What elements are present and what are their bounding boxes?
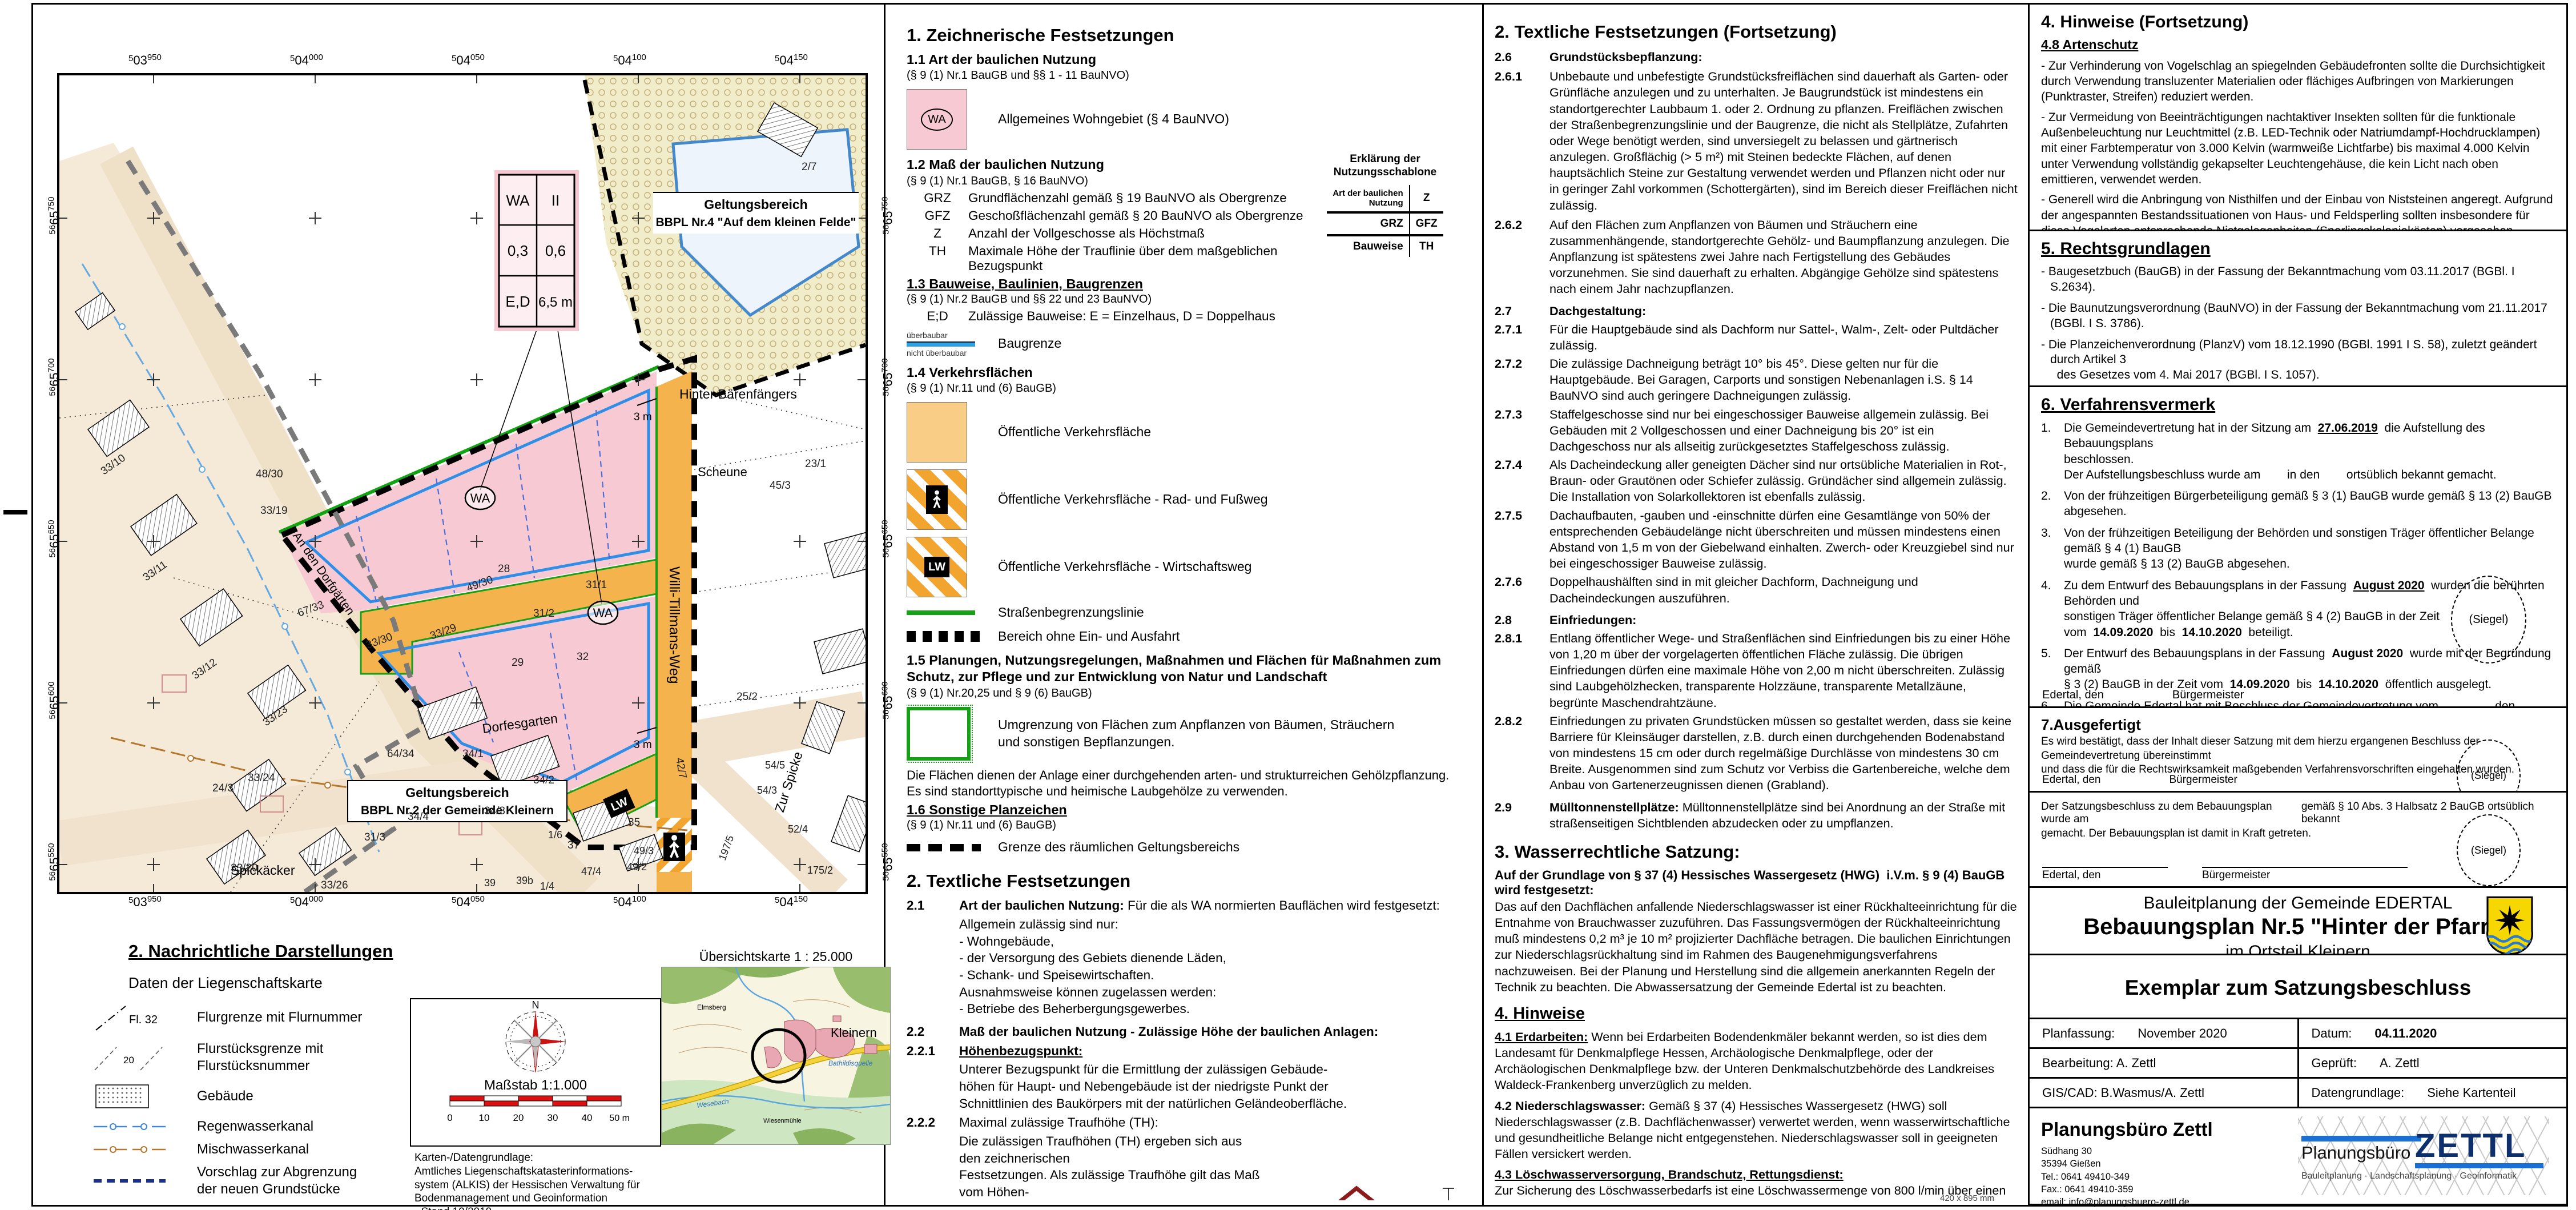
item-number: 2.7.5 [1495, 508, 1549, 572]
svg-text:Geltungsbereich: Geltungsbereich [704, 197, 807, 212]
signature-place: Edertal, den [2042, 689, 2104, 702]
parcel-label: 39b [516, 875, 533, 886]
definition-row: ZAnzahl der Vollgeschosse als Höchstmaß [907, 226, 1462, 241]
svg-text:3 m: 3 m [634, 411, 652, 423]
datasource-line: Karten-/Datengrundlage: [414, 1151, 640, 1165]
label: GIS/CAD: B.Wasmus/A. Zettl [2042, 1086, 2204, 1100]
svg-text:20: 20 [513, 1112, 524, 1123]
geltungsbereich-swatch [907, 844, 981, 851]
svg-text:20: 20 [123, 1055, 134, 1066]
item-text: Als Dacheindeckung aller geneigten Däche… [1549, 457, 2018, 505]
parcel-label: 197/5 [717, 834, 736, 862]
box-verfahrensvermerk: 6. Verfahrensvermerk 1.Die Gemeindevertr… [2028, 387, 2568, 708]
parcel-label: 49/2 [627, 861, 647, 873]
map-coordinate: 504000 [290, 53, 323, 68]
legend-label: Flurgrenze mit Flurnummer [197, 1009, 362, 1026]
legend-label: Umgrenzung von Flächen zum Anpflanzen vo… [998, 717, 1394, 751]
map-coordinate: 504000 [290, 894, 323, 910]
signature-place: Edertal, den [2042, 774, 2100, 786]
item-number: 2.9 [1495, 799, 1549, 831]
column-zeichnerische-festsetzungen: 1. Zeichnerische Festsetzungen1.1 Art de… [907, 23, 1462, 1200]
legend-item: Umgrenzung von Flächen zum Anpflanzen vo… [907, 707, 1462, 761]
svg-text:N: N [532, 999, 540, 1011]
overview-label: Wiesenmühle [763, 1117, 802, 1124]
parcel-label: 39 [484, 877, 496, 889]
scale-bar: 01020304050 m [441, 1094, 630, 1127]
law-reference: - Baugesetzbuch (BauGB) in der Fassung d… [2041, 264, 2555, 295]
svg-text:Geltungsbereich: Geltungsbereich [405, 785, 509, 800]
legend-item: Fl. 32Flurgrenze mit Flurnummer [91, 1000, 434, 1035]
item-number: 2.7.4 [1495, 457, 1549, 505]
map-coordinate: 5665700 [880, 358, 896, 396]
svg-text:10: 10 [479, 1112, 490, 1123]
item-text: Staffelgeschosse sind nur bei eingeschos… [1549, 407, 2018, 455]
legend-label: Baugrenze [998, 335, 1061, 352]
numbered-item: 2.7.6Doppelhaushälften sind in mit gleic… [1495, 574, 2018, 606]
section-heading: 6. Verfahrensvermerk [2041, 395, 2555, 415]
column-textliche-festsetzungen: 2. Textliche Festsetzungen (Fortsetzung)… [1495, 19, 2018, 1201]
section-heading: 4. Hinweise (Fortsetzung) [2041, 13, 2555, 32]
procedure-item: 2.Von der frühzeitigen Bürgerbeteiligung… [2041, 488, 2555, 520]
parcel-label: 35 [628, 817, 640, 829]
definition-row: THMaximale Höhe der Trauflinie über dem … [907, 244, 1462, 274]
parcel-label: 31/3 [364, 831, 385, 843]
overview-label: Kleinern [831, 1026, 877, 1040]
parcel-label: 28 [498, 563, 510, 575]
item-text: Art der baulichen Nutzung: Für die als W… [959, 897, 1462, 914]
box-ausgefertigt: 7.Ausgefertigt Es wird bestätigt, dass d… [2028, 708, 2568, 793]
misch-swatch [91, 1143, 197, 1156]
procedure-item: 3.Von der frühzeitigen Beteiligung der B… [2041, 525, 2555, 572]
numbered-item: 2.7.5Dachaufbauten, -gauben und -einschn… [1495, 508, 2018, 572]
parcel-label: 34/2 [533, 774, 554, 786]
item-text: Mülltonnenstellplätze: Mülltonnenstellpl… [1549, 799, 2018, 831]
definition-text: Grundflächenzahl gemäß § 19 BauNVO als O… [968, 191, 1287, 206]
parcel-label: 33/19 [260, 505, 288, 517]
siegel-circle: (Siegel) [2451, 576, 2526, 664]
plan-map-drawing: WA II 0,3 0,6 E,D 6,5 m WA WA LW [59, 75, 866, 892]
svg-text:WA: WA [470, 491, 490, 505]
map-coordinate: 5665600 [47, 681, 62, 719]
map-coordinate: 504050 [452, 894, 485, 910]
parcel-label: 1/6 [548, 829, 562, 841]
parcel-label: 23/1 [805, 458, 826, 470]
registration-mark [3, 510, 27, 514]
parcel-label: 24/3 [212, 782, 234, 794]
item-text: Dachaufbauten, -gauben und -einschnitte … [1549, 508, 2018, 572]
geltungsbereich4-label: Geltungsbereich BBPL Nr.4 "Auf dem klein… [653, 192, 859, 234]
parcel-label: 1/4 [540, 881, 554, 892]
item-text: Entlang öffentlicher Wege- und Straßenfl… [1549, 630, 2018, 711]
map-coordinate: 504150 [775, 53, 808, 68]
legend-item: LWÖffentliche Verkehrsfläche - Wirtschaf… [907, 537, 1462, 597]
siegel-circle: (Siegel) [2457, 814, 2521, 886]
numbered-item: 2.6.1Unbebaute und unbefestigte Grundstü… [1495, 69, 2018, 214]
svg-text:30: 30 [548, 1112, 558, 1123]
legend-label: Allgemeines Wohngebiet (§ 4 BauNVO) [998, 111, 1229, 128]
plan-sheet: WA II 0,3 0,6 E,D 6,5 m WA WA LW [0, 0, 2576, 1210]
signature-role: Bürgermeister [2172, 689, 2244, 702]
map-coordinate: 504150 [775, 894, 808, 910]
signature-role: Bürgermeister [2202, 867, 2408, 882]
definition-text: Maximale Höhe der Trauflinie über dem ma… [968, 244, 1345, 274]
section-heading: 1. Zeichnerische Festsetzungen [907, 25, 1462, 46]
baugrenze-swatch: überbaubarnicht überbaubar [907, 331, 975, 357]
flurst-swatch: 20 [91, 1040, 197, 1075]
firm-contact-line: email: info@planungsbuero-zettl.de [2041, 1196, 2555, 1208]
legend-item: Regenwasserkanal [91, 1118, 434, 1135]
street-label: Willi-Tillmans-Weg [666, 566, 682, 684]
no-entry-swatch [907, 631, 981, 642]
item-text: Für die Hauptgebäude sind als Dachform n… [1549, 321, 2018, 353]
paragraph: Allgemein zulässig sind nur:- Wohngebäud… [959, 916, 1462, 1018]
section-heading: 1.2 Maß der baulichen Nutzung Erklärung … [907, 156, 1462, 173]
subsection-heading: 4.8 Artenschutz [2041, 37, 2555, 54]
text-left: Der Satzungsbeschluss zu dem Bebauungspl… [2041, 801, 2301, 826]
numbered-item: 2.7.1Für die Hauptgebäude sind als Dachf… [1495, 321, 2018, 353]
value: 04.11.2020 [2374, 1026, 2437, 1041]
paragraph: (§ 9 (1) Nr.11 und (6) BauGB) [907, 382, 1462, 395]
parcel-label: 34/1 [462, 748, 484, 760]
logo-text-small: Planungsbüro [2301, 1143, 2410, 1163]
legend-item: Gebäude [91, 1080, 434, 1112]
svg-text:WA: WA [593, 606, 613, 620]
overview-label: Elmsberg [697, 1003, 726, 1011]
svg-text:0,3: 0,3 [508, 242, 528, 259]
item-text: Maß der baulichen Nutzung - Zulässige Hö… [959, 1023, 1462, 1040]
wirtschaftsweg-swatch: LW [907, 537, 967, 597]
map-coordinate: 5665550 [880, 843, 896, 881]
svg-text:6,5 m: 6,5 m [538, 295, 573, 310]
numbered-item: 2.9Mülltonnenstellplätze: Mülltonnenstel… [1495, 799, 2018, 831]
numbered-item: 2.6Grundstücksbepflanzung: [1495, 49, 2018, 65]
section-heading: 5. Rechtsgrundlagen [2041, 239, 2555, 259]
legend-label: Grenze des räumlichen Geltungsbereichs [998, 839, 1239, 856]
item-text: Doppelhaushälften sind in mit gleicher D… [1549, 574, 2018, 606]
plan-authority: Bauleitplanung der Gemeinde EDERTAL [2041, 894, 2555, 913]
legend-item: Vorschlag zur Abgrenzungder neuen Grunds… [91, 1164, 434, 1198]
law-reference: - Die Planzeichenverordnung (PlanzV) vom… [2041, 337, 2555, 384]
item-text: Einfriedungen: [1549, 612, 2018, 628]
map-coordinate: 5665750 [880, 196, 896, 234]
verkehrsflaeche-swatch [907, 402, 967, 463]
planungsbuero-block: Planungsbüro Zettl Südhang 3035394 Gieße… [2028, 1108, 2568, 1205]
paragraph: (§ 9 (1) Nr.1 BauGB, § 16 BauNVO) [907, 175, 1462, 188]
column-hinweise-verfahren: 4. Hinweise (Fortsetzung) 4.8 Artenschut… [2028, 3, 2568, 1205]
paragraph: - Zur Vermeidung von Beeinträchtigungen … [2041, 110, 2555, 187]
map-coordinate: 5665650 [47, 520, 62, 557]
section-heading: 3. Wasserrechtliche Satzung: [1495, 842, 2018, 862]
datasource-line: Bodenmanagement und Geoinformation [414, 1192, 640, 1205]
parcel-label: 37 [567, 839, 579, 851]
box-satzungsbeschluss: Der Satzungsbeschluss zu dem Bebauungspl… [2028, 793, 2568, 888]
svg-text:BBPL Nr.4 "Auf dem kleinen Fel: BBPL Nr.4 "Auf dem kleinen Felde" [656, 216, 856, 229]
legend-label: Regenwasserkanal [197, 1118, 313, 1135]
label: Planfassung: [2042, 1026, 2115, 1041]
legend-label: Bereich ohne Ein- und Ausfahrt [998, 628, 1180, 645]
logo-text-main: ZETTL [2415, 1127, 2526, 1165]
parcel-label: 54/3 [757, 785, 777, 796]
plan-title: Bebauungsplan Nr.5 "Hinter der Pfarre" [2041, 914, 2555, 940]
map-coordinate: 504100 [613, 53, 646, 68]
numbered-item: 2.7.3Staffelgeschosse sind nur bei einge… [1495, 407, 2018, 455]
coat-of-arms [2485, 895, 2535, 959]
fussweg-swatch [907, 469, 967, 530]
symbol: TH [907, 244, 968, 274]
item-number: 2.2.2 [907, 1114, 959, 1131]
paragraph: (§ 9 (1) Nr.2 BauGB und §§ 22 und 23 Bau… [907, 293, 1462, 306]
map-coordinate: 5665550 [47, 843, 62, 881]
section-heading: 1.3 Bauweise, Baulinien, Baugrenzen [907, 276, 1462, 292]
paragraph: (§ 9 (1) Nr.20,25 und § 9 (6) BauGB) [907, 687, 1462, 700]
paragraph: (§ 9 (1) Nr.1 BauGB und §§ 1 - 11 BauNVO… [907, 69, 1462, 82]
item-number: 2.7.6 [1495, 574, 1549, 606]
item-number: 2.8.2 [1495, 713, 1549, 794]
definition-text: Geschoßflächenzahl gemäß § 20 BauNVO als… [968, 208, 1303, 223]
strassenbegrenzung-swatch [907, 610, 975, 615]
item-number: 2.7 [1495, 303, 1549, 319]
svg-text:WA: WA [506, 192, 530, 209]
item-number: 2.6 [1495, 49, 1549, 65]
item-number: 2.7.2 [1495, 356, 1549, 404]
paragraph: 4.2 Niederschlagswasser: Gemäß § 37 (4) … [1495, 1098, 2018, 1163]
section-heading: 1.1 Art der baulichen Nutzung [907, 51, 1462, 68]
paragraph: Auf der Grundlage von § 37 (4) Hessische… [1495, 868, 2018, 898]
map-coordinate: 504100 [613, 894, 646, 910]
label: Datengrundlage: [2312, 1086, 2405, 1100]
numbered-item: 2.7.2Die zulässige Dachneigung beträgt 1… [1495, 356, 2018, 404]
meta-row-giscad: GIS/CAD: B.Wasmus/A. Zettl Datengrundlag… [2028, 1079, 2568, 1108]
numbered-item: 2.7Dachgestaltung: [1495, 303, 2018, 319]
item-number: 2.1 [907, 897, 959, 914]
overview-map-title: Übersichtskarte 1 : 25.000 [661, 949, 891, 964]
item-number: 2.6.2 [1495, 217, 1549, 298]
paragraph: Das auf den Dachflächen anfallende Niede… [1495, 899, 2018, 995]
item-number: 2.6.1 [1495, 69, 1549, 214]
legend2-items: Fl. 32Flurgrenze mit Flurnummer20Flurstü… [91, 1000, 434, 1204]
datasource-line: system (ALKIS) der Hessischen Verwaltung… [414, 1179, 640, 1192]
parcel-label: 175/2 [807, 865, 833, 876]
map-coordinate: 5665600 [880, 681, 896, 719]
hoehen-schemaskizze: TH FH Vorhandenes Gelände Schemaskizze z… [1277, 1125, 1462, 1200]
section-heading: 7.Ausgefertigt [2041, 716, 2555, 734]
exemplar-label: Exemplar zum Satzungsbeschluss [2125, 976, 2472, 1000]
numbered-item: 2.2Maß der baulichen Nutzung - Zulässige… [907, 1023, 1462, 1040]
parcel-label: 29 [512, 657, 524, 669]
item-number: 2.8.1 [1495, 630, 1549, 711]
parcel-label: 2/7 [802, 161, 816, 173]
parcel-label: 34/4 [408, 811, 429, 823]
legend-item: Grenze des räumlichen Geltungsbereichs [907, 839, 1462, 856]
section-heading: 1.4 Verkehrsflächen [907, 364, 1462, 381]
paragraph: Die Flächen dienen der Anlage einer durc… [907, 767, 1462, 801]
parcel-label: 25/2 [736, 691, 758, 703]
box-rechtsgrundlagen: 5. Rechtsgrundlagen - Baugesetzbuch (Bau… [2028, 231, 2568, 387]
text-right: gemäß § 10 Abs. 3 Halbsatz 2 BauGB ortsü… [2301, 801, 2555, 826]
logo-tagline: Bauleitplanung · Landschaftsplanung · Ge… [2301, 1171, 2517, 1181]
section-heading: 2. Textliche Festsetzungen [907, 871, 1462, 891]
parcel-label: 64/34 [387, 748, 414, 760]
flur-swatch: Fl. 32 [91, 1000, 197, 1035]
item-text: Höhenbezugspunkt: [959, 1043, 1462, 1060]
section-heading: 2. Textliche Festsetzungen (Fortsetzung) [1495, 22, 2018, 42]
svg-text:0: 0 [447, 1112, 452, 1123]
item-number: 2.7.3 [1495, 407, 1549, 455]
definition-row: E;DZulässige Bauweise: E = Einzelhaus, D… [907, 309, 1462, 324]
svg-text:BBPL Nr.2 der Gemeinde Kleiner: BBPL Nr.2 der Gemeinde Kleinern [361, 804, 554, 817]
legend2-title: 2. Nachrichtliche Darstellungen [128, 941, 393, 962]
law-reference: - Die Baunutzungsverordnung (BauNVO) in … [2041, 301, 2555, 332]
svg-text:40: 40 [582, 1112, 593, 1123]
map-coordinate: 503950 [128, 894, 162, 910]
street-label: Hinter Bärenfängers [679, 387, 797, 401]
parcel-label: 32 [577, 651, 589, 663]
legend-item: Mischwasserkanal [91, 1141, 434, 1158]
svg-text:3 m: 3 m [634, 739, 652, 751]
symbol: GRZ [907, 191, 968, 206]
meta-row-bearbeitung: Bearbeitung: A. Zettl Geprüft:A. Zettl [2028, 1049, 2568, 1079]
item-text: Dachgestaltung: [1549, 303, 2018, 319]
legend-label: Mischwasserkanal [197, 1141, 309, 1158]
parcel-label: 33/24 [248, 772, 275, 784]
svg-text:II: II [552, 192, 560, 209]
legend-label: Öffentliche Verkehrsfläche [998, 424, 1151, 441]
map-coordinate: 503950 [128, 53, 162, 68]
datasource-line: - Stand 10/2019 - [414, 1205, 640, 1210]
title-block: Bauleitplanung der Gemeinde EDERTAL Beba… [2028, 888, 2568, 955]
value: Siehe Kartenteil [2427, 1086, 2515, 1100]
numbered-item: 2.2.1Höhenbezugspunkt: [907, 1043, 1462, 1060]
legend-item: überbaubarnicht überbaubarBaugrenze [907, 331, 1462, 357]
numbered-item: 2.7.4Als Dacheindeckung aller geneigten … [1495, 457, 2018, 505]
data-source-note: Karten-/Datengrundlage:Amtliches Liegens… [414, 1151, 640, 1210]
signature-role: Bürgermeister [2169, 774, 2237, 786]
item-number: 2.8 [1495, 612, 1549, 628]
item-text: Auf den Flächen zum Anpflanzen von Bäume… [1549, 217, 2018, 298]
anpflanzung-swatch [907, 707, 971, 761]
overview-label: Bathildisquelle [828, 1059, 873, 1067]
symbol: E;D [907, 309, 968, 324]
parcel-label: 33/26 [321, 879, 348, 891]
parcel-label: 52/4 [788, 823, 808, 835]
parcel-label: 48/30 [256, 468, 283, 480]
map-coordinate: 5665700 [47, 358, 62, 396]
legend-item: WAAllgemeines Wohngebiet (§ 4 BauNVO) [907, 89, 1462, 150]
legend-label: Öffentliche Verkehrsfläche - Rad- und Fu… [998, 491, 1268, 508]
svg-text:Fl. 32: Fl. 32 [129, 1014, 158, 1026]
parcel-label: 47/4 [581, 866, 601, 877]
overview-map: KleinernElmsbergWesebachBathildisquelleW… [661, 967, 891, 1145]
svg-text:E,D: E,D [505, 293, 530, 310]
item-text: Die zulässige Dachneigung beträgt 10° bi… [1549, 356, 2018, 404]
item-number: 2.2 [907, 1023, 959, 1040]
label: Bearbeitung: A. Zettl [2042, 1056, 2156, 1071]
legend-item: Bereich ohne Ein- und Ausfahrt [907, 628, 1462, 645]
legend-item: Öffentliche Verkehrsfläche [907, 402, 1462, 463]
section-heading: 1.6 Sonstige Planzeichen [907, 802, 1462, 818]
map-coordinate: 504050 [452, 53, 485, 68]
item-text: Grundstücksbepflanzung: [1549, 49, 2018, 65]
legend-item: 20Flurstücksgrenze mit Flurstücksnummer [91, 1040, 434, 1075]
compass-rose: N [490, 999, 581, 1074]
legend-label: Flurstücksgrenze mit Flurstücksnummer [197, 1040, 434, 1075]
parcel-label: 49/3 [634, 845, 654, 857]
item-number: 2.7.1 [1495, 321, 1549, 353]
numbered-item: 2.8.2Einfriedungen zu privaten Grundstüc… [1495, 713, 2018, 794]
exemplar-row: Exemplar zum Satzungsbeschluss [2028, 955, 2568, 1019]
geltungsbereich2-label: Geltungsbereich BBPL Nr.2 der Gemeinde K… [348, 781, 567, 822]
signature-place: Edertal, den [2042, 867, 2168, 882]
map-coordinate: 5665750 [47, 196, 62, 234]
svg-text:0,6: 0,6 [545, 242, 566, 259]
pedestrian-badge [663, 833, 685, 861]
street-label: Scheune [698, 465, 747, 479]
meta-row-planfassung: Planfassung:November 2020 Datum:04.11.20… [2028, 1019, 2568, 1049]
wa-area-swatch: WA [907, 89, 967, 150]
numbered-item: 2.8Einfriedungen: [1495, 612, 2018, 628]
vorschlag-swatch [91, 1175, 197, 1187]
legend-label: Gebäude [197, 1088, 253, 1105]
geb-swatch [91, 1080, 197, 1112]
definition-row: GFZGeschoßflächenzahl gemäß § 20 BauNVO … [907, 208, 1462, 223]
sheet-format-note: 420 x 895 mm [1940, 1193, 1994, 1203]
numbered-item: 2.1Art der baulichen Nutzung: Für die al… [907, 897, 1462, 914]
item-number: 2.2.1 [907, 1043, 959, 1060]
numbered-item: 2.8.1Entlang öffentlicher Wege- und Stra… [1495, 630, 2018, 711]
planungsbuero-logo: Planungsbüro ZETTL Bauleitplanung · Land… [2298, 1116, 2549, 1195]
section-heading: 4. Hinweise [1495, 1004, 2018, 1023]
legend-item: Straßenbegrenzungslinie [907, 604, 1462, 621]
datasource-line: Amtliches Liegenschaftskatasterinformati… [414, 1165, 640, 1179]
label: Datum: [2312, 1026, 2352, 1041]
paragraph: - Zur Verhinderung von Vogelschlag an sp… [2041, 58, 2555, 105]
item-text: Einfriedungen zu privaten Grundstücken m… [1549, 713, 2018, 794]
legend2-subtitle: Daten der Liegenschaftskarte [128, 974, 323, 992]
legend-label: Straßenbegrenzungslinie [998, 604, 1144, 621]
definition-row: GRZGrundflächenzahl gemäß § 19 BauNVO al… [907, 191, 1462, 206]
definition-text: Zulässige Bauweise: E = Einzelhaus, D = … [968, 309, 1275, 324]
parcel-label: 31/2 [533, 608, 554, 620]
legend-label: Vorschlag zur Abgrenzungder neuen Grunds… [197, 1164, 357, 1198]
scale-title: Maßstab 1:1.000 [411, 1078, 660, 1094]
parcel-label: 54/5 [765, 759, 785, 771]
symbol: GFZ [907, 208, 968, 223]
parcel-label: 33/20 [231, 862, 258, 874]
paragraph: 4.3 Löschwasserversorgung, Brandschutz, … [1495, 1167, 2018, 1201]
map-coordinate: 5665650 [880, 520, 896, 557]
paragraph: Die zulässigen Traufhöhen (TH) ergeben s… [959, 1133, 1462, 1200]
parcel-label: 45/3 [770, 480, 791, 492]
legend-item: Öffentliche Verkehrsfläche - Rad- und Fu… [907, 469, 1462, 530]
legend-label: Öffentliche Verkehrsfläche - Wirtschafts… [998, 558, 1251, 576]
section-heading: 1.5 Planungen, Nutzungsregelungen, Maßna… [907, 652, 1462, 686]
symbol: Z [907, 226, 968, 241]
compass-scale-box: N Maßstab 1:1.000 01020304050 m [410, 998, 661, 1147]
item-text: Unbebaute und unbefestigte Grundstücksfr… [1549, 69, 2018, 214]
parcel-label: 31/1 [586, 579, 607, 591]
overview-map-box: Übersichtskarte 1 : 25.000 [661, 949, 891, 1145]
procedure-item: 1.Die Gemeindevertretung hat in der Sitz… [2041, 420, 2555, 483]
regen-swatch [91, 1120, 197, 1133]
value: A. Zettl [2380, 1056, 2420, 1071]
box-hinweise-fortsetzung: 4. Hinweise (Fortsetzung) 4.8 Artenschut… [2028, 3, 2568, 231]
paragraph: 4.1 Erdarbeiten: Wenn bei Erdarbeiten Bo… [1495, 1029, 2018, 1094]
paragraph: Unterer Bezugspunkt für die Ermittlung d… [959, 1061, 1462, 1112]
numbered-item: 2.6.2Auf den Flächen zum Anpflanzen von … [1495, 217, 2018, 298]
plan-map: WA II 0,3 0,6 E,D 6,5 m WA WA LW [57, 73, 868, 894]
paragraph: (§ 9 (1) Nr.11 und (6) BauGB) [907, 819, 1462, 832]
parcel-label: 34/3 [484, 805, 505, 817]
